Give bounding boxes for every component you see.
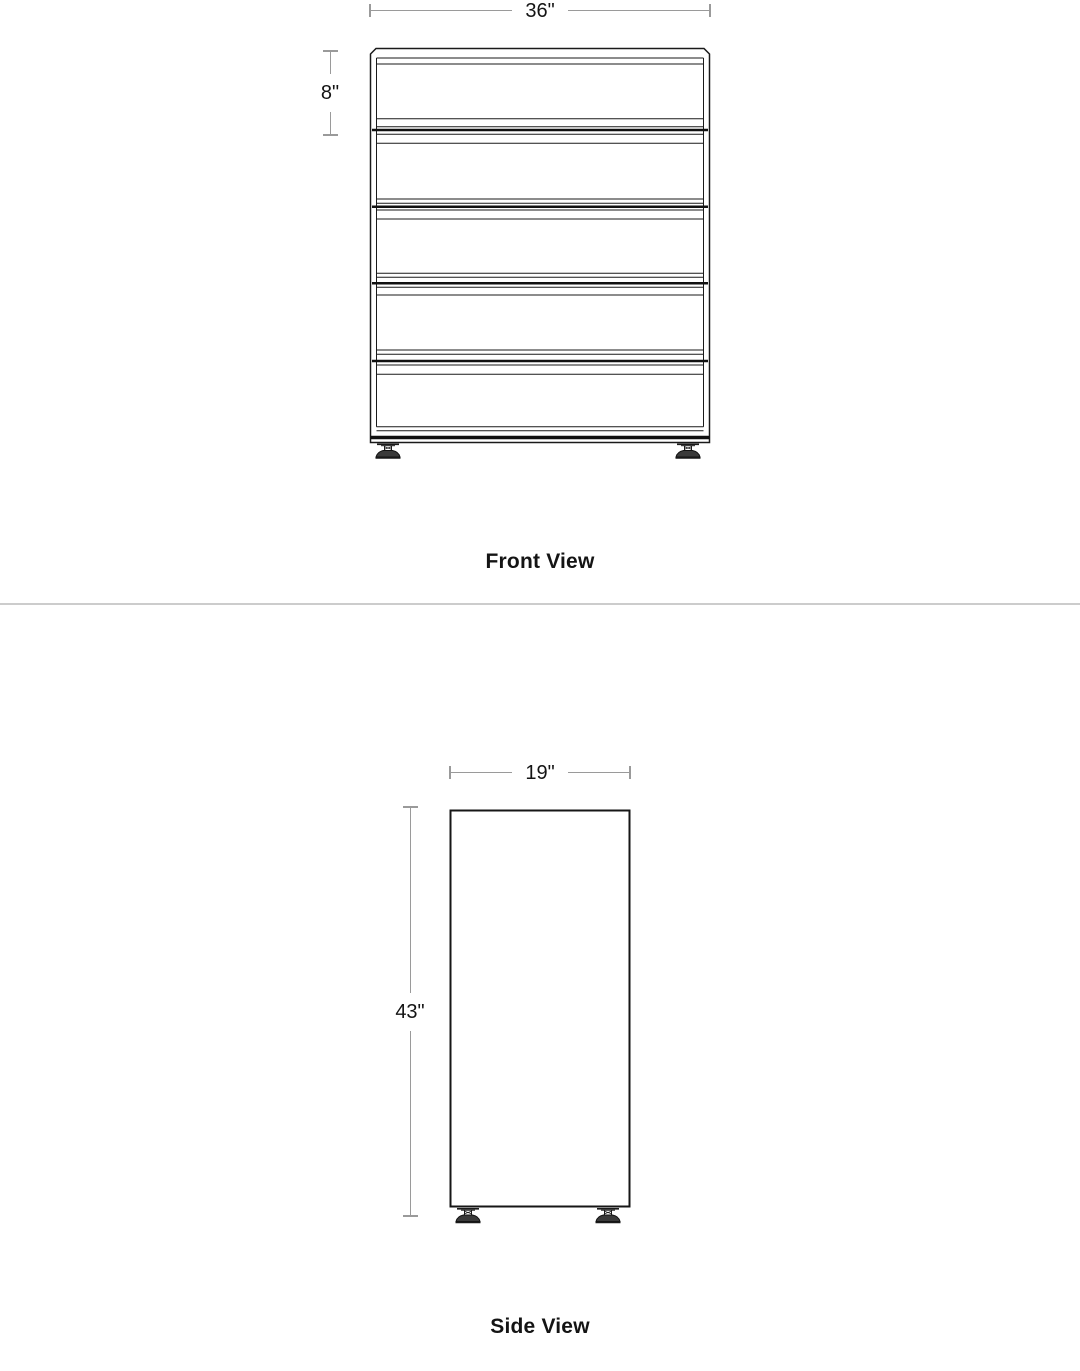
dimension-tick-right [709, 4, 711, 17]
dimension-line-segment [568, 10, 709, 11]
furniture-dimension-drawing: 36" 8" [0, 0, 1080, 1371]
side-height-dimension-label: 43" [395, 993, 424, 1031]
front-width-dimension: 36" [369, 2, 711, 19]
dimension-tick-right [629, 766, 631, 779]
front-width-dimension-label: 36" [512, 1, 567, 21]
dimension-line-segment [568, 772, 629, 773]
front-drawer-height-dimension-label: 8" [321, 74, 339, 112]
side-view-label: Side View [0, 1315, 1080, 1339]
side-depth-dimension: 19" [449, 764, 631, 781]
dimension-tick-bottom [403, 1215, 418, 1217]
side-depth-dimension-label: 19" [512, 763, 567, 783]
dimension-line-segment [371, 10, 512, 11]
side-left-foot [456, 1209, 481, 1223]
section-divider [0, 603, 1080, 605]
side-height-dimension: 43" [395, 806, 425, 1217]
front-view-drawing [366, 42, 714, 466]
front-left-foot [376, 444, 401, 458]
side-right-foot [596, 1209, 621, 1223]
front-cabinet-outline [371, 49, 710, 443]
front-top-drawer-height-dimension: 8" [322, 50, 338, 136]
front-right-foot [676, 444, 701, 458]
side-view-drawing [446, 806, 634, 1230]
side-panel-outline [451, 811, 630, 1207]
front-view-label: Front View [0, 550, 1080, 574]
dimension-line-segment [410, 1031, 411, 1216]
dimension-line-segment [451, 772, 512, 773]
dimension-line-segment [330, 112, 331, 134]
dimension-tick-bottom [323, 134, 338, 136]
dimension-line-segment [330, 52, 331, 74]
dimension-line-segment [410, 808, 411, 993]
